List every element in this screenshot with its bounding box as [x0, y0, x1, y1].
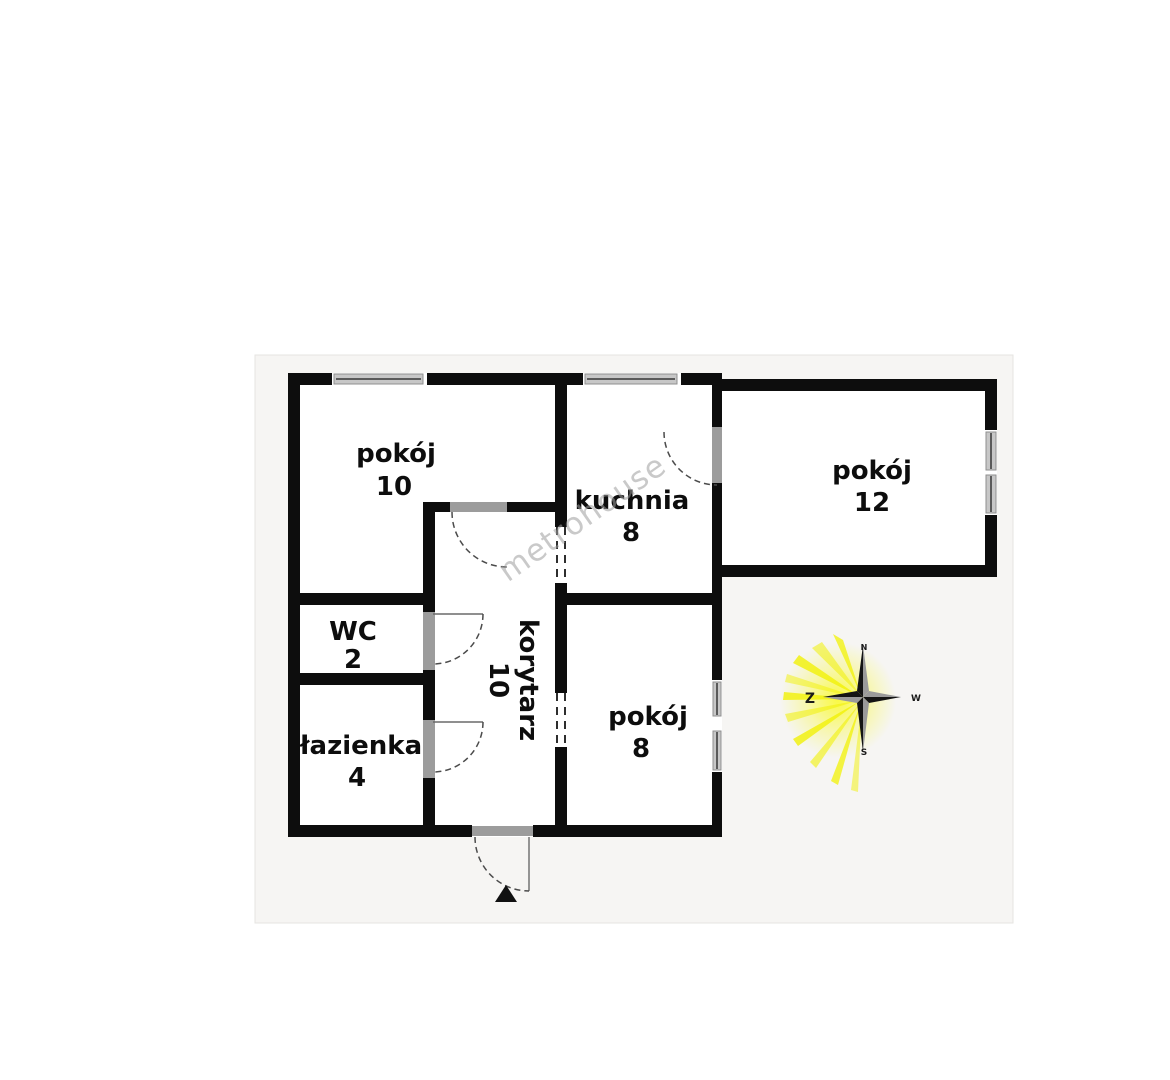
wall-segment: [985, 379, 997, 430]
wall-segment: [423, 778, 435, 825]
compass-south-label: S: [861, 748, 867, 758]
room-area: 10: [376, 472, 412, 502]
room-name: WC: [329, 617, 377, 647]
room-name: pokój: [832, 456, 912, 486]
room-area: 12: [854, 488, 890, 518]
wall-segment: [712, 385, 722, 427]
wall-segment: [555, 593, 722, 605]
wall-segment: [288, 373, 300, 837]
room-area: 8: [632, 734, 650, 764]
wall-segment: [423, 670, 435, 720]
room-area: 10: [483, 662, 513, 698]
wall-segment: [423, 502, 435, 612]
compass-north-label: N: [861, 643, 868, 652]
wall-segment: [712, 379, 997, 391]
wall-segment: [423, 502, 450, 512]
room-area: 2: [344, 645, 362, 675]
wall-segment: [533, 825, 722, 837]
room-name: pokój: [608, 702, 688, 732]
passage-korytarz-pokoj8: [555, 693, 567, 747]
window-kuchnia: [585, 374, 677, 384]
floor-plan-page: pokój 10 kuchnia 8 pokój 12 WC 2 łazienk…: [0, 0, 1170, 1080]
room-area: 4: [348, 763, 366, 793]
room-name: korytarz: [513, 619, 543, 741]
floor-plan-drawing: pokój 10 kuchnia 8 pokój 12 WC 2 łazienk…: [0, 0, 1170, 1080]
wall-segment: [712, 772, 722, 825]
wall-segment: [712, 483, 722, 680]
window-pokoj10: [334, 374, 423, 384]
room-name: łazienka: [299, 731, 422, 761]
wall-segment: [288, 825, 472, 837]
wall-segment: [427, 373, 583, 385]
wall-segment: [555, 747, 567, 825]
wall-segment: [712, 565, 997, 577]
wall-segment: [300, 593, 435, 605]
room-area: 8: [622, 518, 640, 548]
room-name: pokój: [356, 439, 436, 469]
compass-west-label: Z: [805, 691, 815, 707]
wall-segment: [555, 385, 567, 527]
compass-east-label: W: [911, 694, 921, 704]
